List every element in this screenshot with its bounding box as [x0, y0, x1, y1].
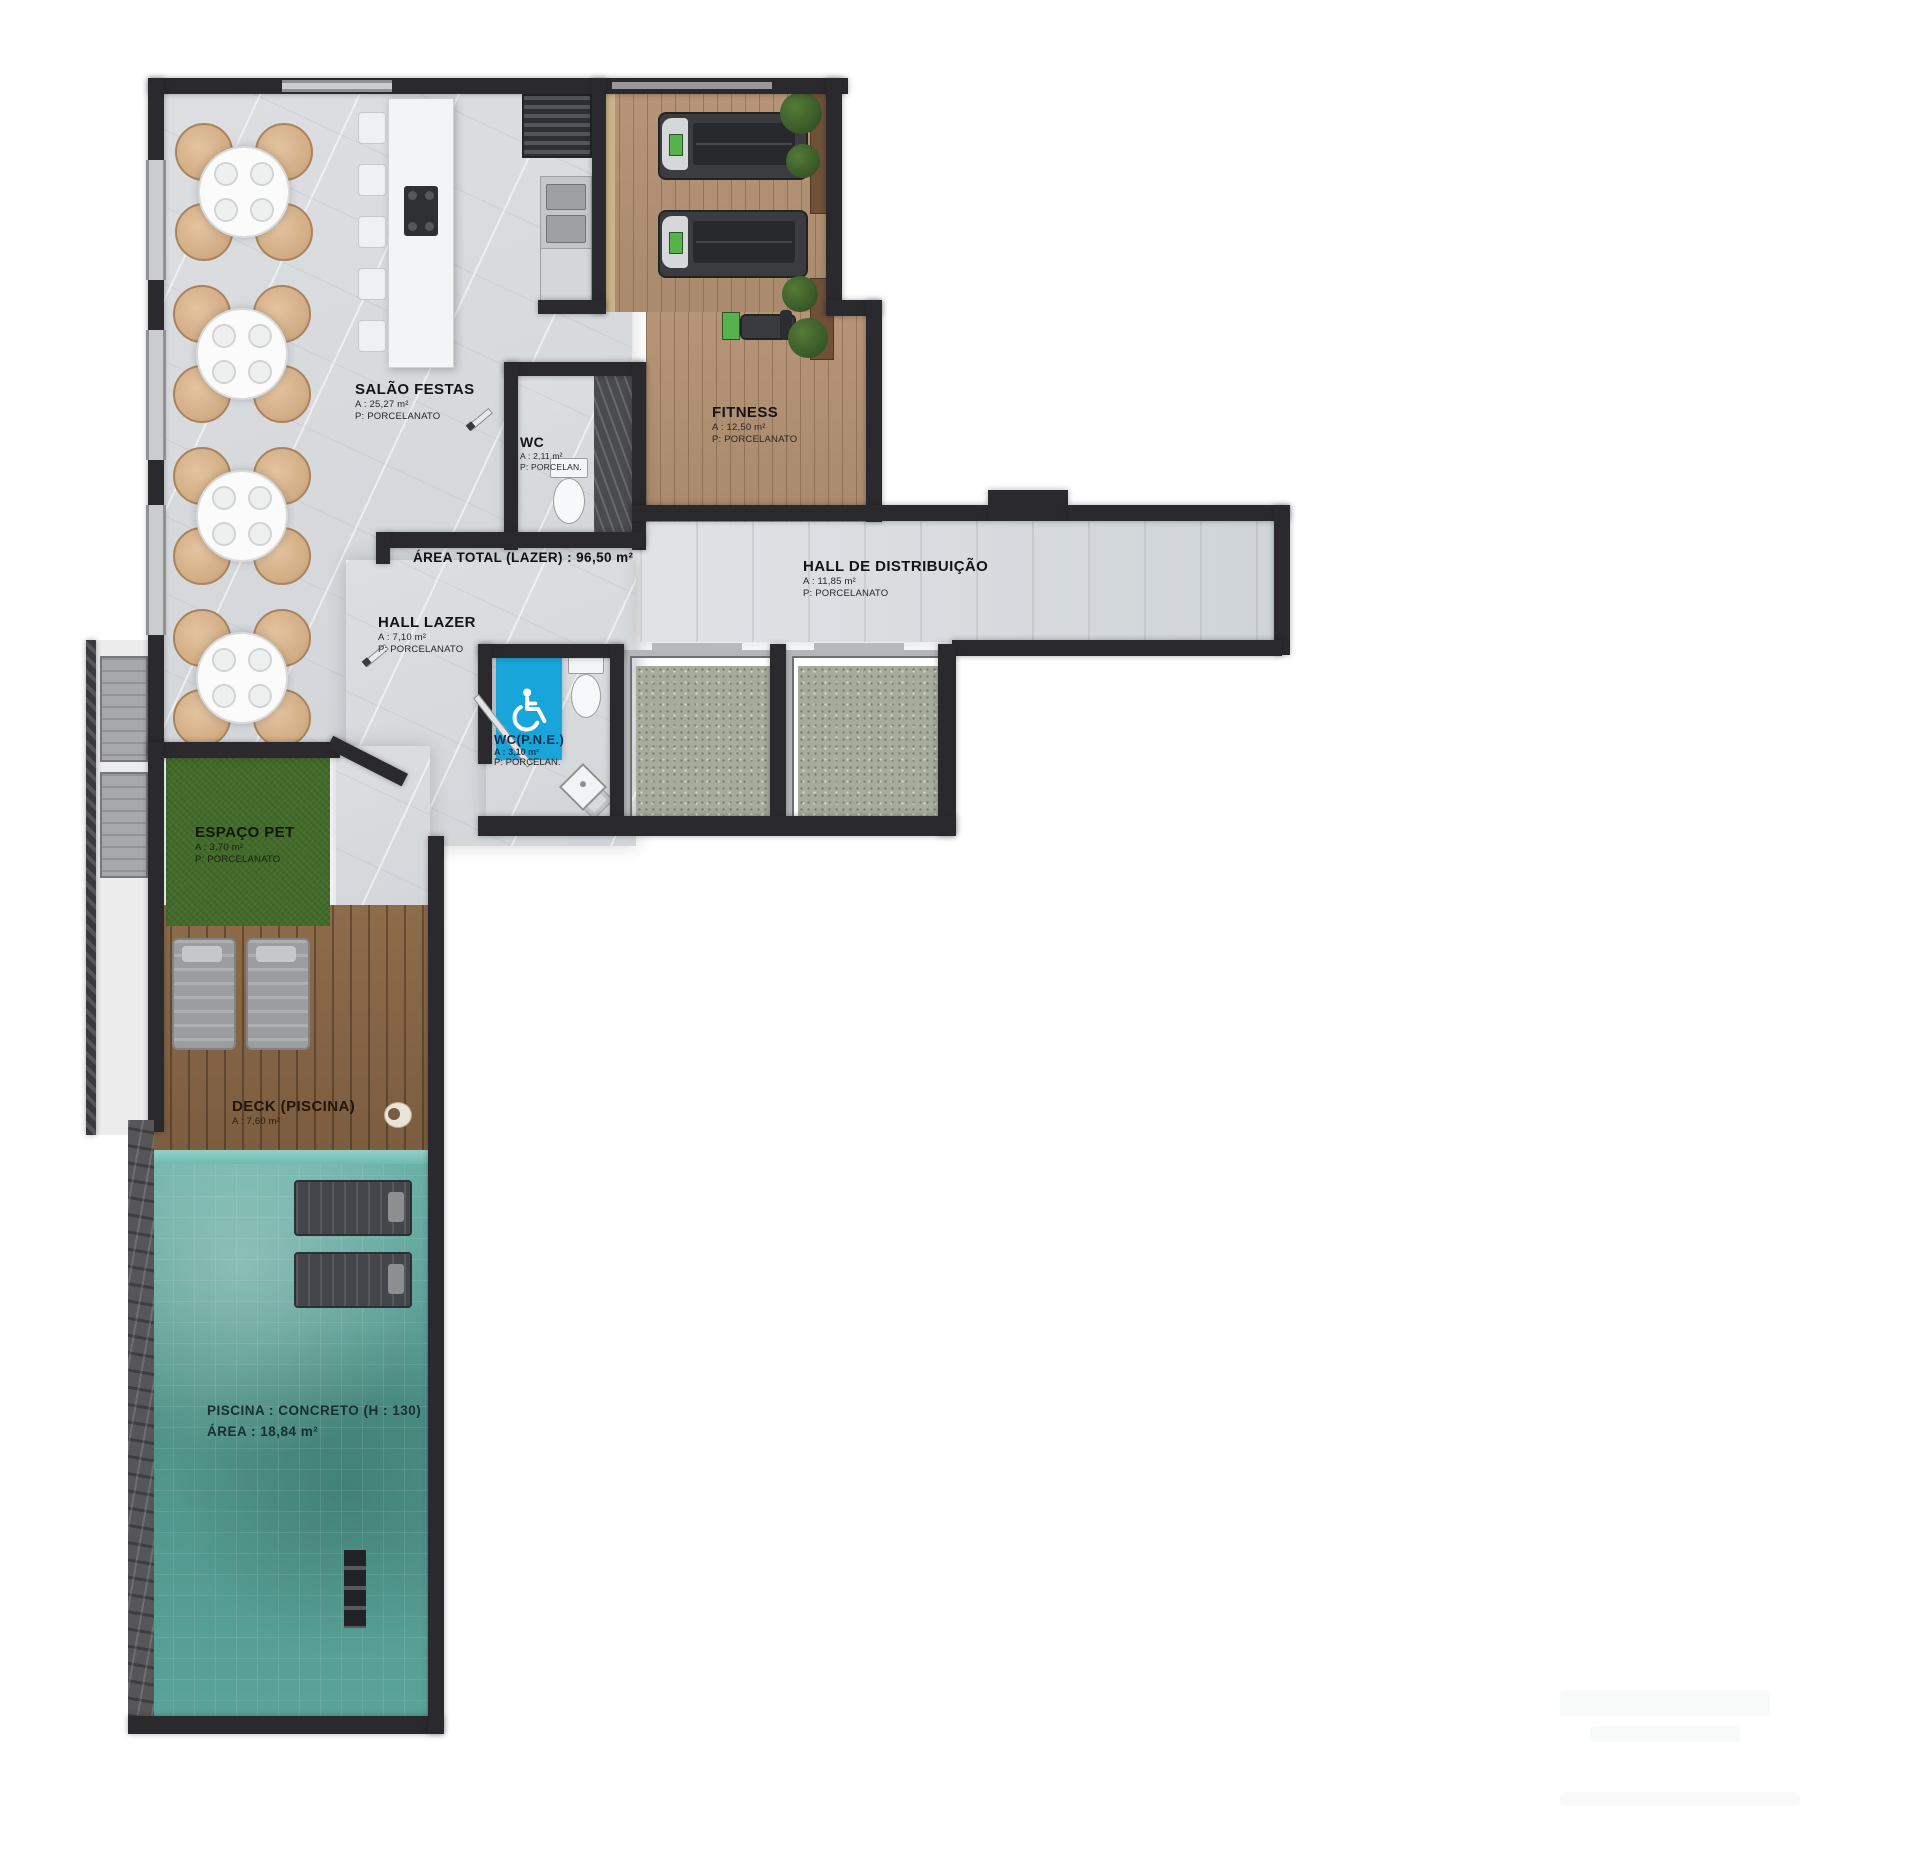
exercise-bike: [722, 306, 798, 348]
fitness-edge-strip: [605, 94, 615, 312]
wall-corridor-top-a: [632, 505, 988, 521]
wall-wcpne-top: [478, 644, 624, 658]
label-wc: WC A : 2,11 m² P: PORCELAN.: [520, 434, 582, 472]
watermark: [1560, 1690, 1840, 1816]
window-left-2: [146, 330, 166, 460]
plant: [788, 318, 828, 358]
label-hall-distribuicao: HALL DE DISTRIBUIÇÃO A : 11,85 m² P: POR…: [803, 558, 988, 599]
room-floor: P: PORCELANATO: [355, 411, 475, 422]
treadmill: [658, 210, 808, 278]
room-floor: P: PORCELANATO: [803, 588, 988, 599]
pool-water: [152, 1162, 428, 1722]
floor-plan: SALÃO FESTAS A : 25,27 m² P: PORCELANATO…: [0, 0, 1920, 1853]
label-area-total: ÁREA TOTAL (LAZER) : 96,50 m²: [413, 550, 633, 565]
cooktop: [404, 186, 438, 236]
wall-left-pet-deck: [148, 742, 164, 1132]
room-title: FITNESS: [712, 404, 797, 421]
pool-ladder: [344, 1550, 366, 1628]
wall-bottom-services: [478, 816, 956, 836]
wall-corridor-top-b: [1068, 505, 1290, 521]
elevator-2-floor: [798, 666, 938, 816]
room-area: A : 3,10 m²: [494, 747, 564, 757]
room-title: SALÃO FESTAS: [355, 381, 475, 398]
deck-lounger: [172, 938, 236, 1050]
pool-lounger: [294, 1252, 412, 1308]
wall-elevator-right: [938, 644, 956, 836]
pool-area-line: ÁREA : 18,84 m²: [207, 1424, 421, 1439]
wall-hall-stub: [376, 532, 390, 564]
elevator-2-door-sill: [814, 643, 904, 651]
wall-counter-end: [538, 300, 606, 314]
room-title: WC(P.N.E.): [494, 732, 564, 747]
label-piscina: PISCINA : CONCRETO (H : 130) ÁREA : 18,8…: [207, 1403, 421, 1439]
label-deck-piscina: DECK (PISCINA) A : 7,60 m²: [232, 1098, 355, 1127]
deck-lounger: [246, 938, 310, 1050]
outdoor-unit: [100, 772, 148, 878]
room-floor: P: PORCELANATO: [195, 854, 295, 865]
wall-bottom-pool: [128, 1716, 444, 1734]
wall-wc-bottom: [388, 532, 644, 548]
round-table: [196, 308, 288, 400]
dining-table-set: [165, 601, 315, 751]
wall-outside-hatch: [86, 640, 96, 1135]
label-wc-pne: WC(P.N.E.) A : 3,10 m² P: PORCELAN.: [494, 732, 564, 768]
wall-party-bottom: [148, 742, 340, 758]
room-area: A : 3,70 m²: [195, 842, 295, 853]
room-title: HALL DE DISTRIBUIÇÃO: [803, 558, 988, 575]
dog: [384, 1102, 412, 1128]
room-floor: P: PORCELAN.: [520, 462, 582, 472]
wall-wc-left: [504, 362, 518, 550]
plant: [786, 144, 820, 178]
room-title: WC: [520, 434, 582, 450]
label-hall-lazer: HALL LAZER A : 7,10 m² P: PORCELANATO: [378, 614, 476, 655]
wc-granite-strip: [594, 376, 634, 532]
pool-lounger: [294, 1180, 412, 1236]
round-table: [198, 146, 290, 238]
pool-edge-coping: [152, 1150, 428, 1164]
room-area: A : 7,60 m²: [232, 1116, 355, 1127]
room-title: HALL LAZER: [378, 614, 476, 631]
room-area: A : 12,50 m²: [712, 422, 797, 433]
wall-wc-top: [504, 362, 644, 376]
bar-stool: [358, 216, 386, 248]
bar-stool: [358, 268, 386, 300]
wall-fitness-right-upper: [826, 78, 842, 314]
round-table: [196, 632, 288, 724]
window-left-1: [146, 160, 166, 280]
dining-table-set: [165, 439, 315, 589]
room-area: A : 2,11 m²: [520, 451, 582, 461]
wall-right-deck-pool: [428, 836, 444, 1734]
wc-toilet-bowl: [553, 478, 585, 524]
window-left-3: [146, 505, 166, 635]
elevator-1-frame: [624, 650, 782, 828]
elevator-2-frame: [786, 650, 950, 828]
plant: [780, 92, 822, 134]
label-salao-festas: SALÃO FESTAS A : 25,27 m² P: PORCELANATO: [355, 381, 475, 422]
wall-kitchen-divider: [592, 78, 606, 314]
wall-stone-pool: [128, 1120, 154, 1734]
bar-stool: [358, 164, 386, 196]
wall-wc-right: [632, 362, 646, 550]
room-area: A : 25,27 m²: [355, 399, 475, 410]
wall-wcpne-right: [610, 644, 624, 820]
wc-pne-toilet-bowl: [571, 674, 601, 718]
wall-corridor-bottom: [952, 640, 1282, 656]
wall-elevator-divider: [770, 644, 786, 816]
window-top-1: [282, 80, 392, 92]
wheelchair-icon: [507, 685, 551, 733]
room-area: A : 7,10 m²: [378, 632, 476, 643]
bar-stool: [358, 112, 386, 144]
bar-stool: [358, 320, 386, 352]
label-espaco-pet: ESPAÇO PET A : 3,70 m² P: PORCELANATO: [195, 824, 295, 865]
barbecue-grill: [522, 94, 592, 158]
wall-corridor-bump: [988, 490, 1068, 521]
plant: [782, 276, 818, 312]
wc-pne-toilet-tank: [568, 656, 604, 674]
label-fitness: FITNESS A : 12,50 m² P: PORCELANATO: [712, 404, 797, 445]
room-floor: P: PORCELAN.: [494, 757, 564, 768]
entry-slider-track: [612, 82, 772, 89]
wall-corridor-right: [1274, 505, 1290, 655]
kitchen-counter: [540, 248, 592, 304]
room-title: DECK (PISCINA): [232, 1098, 355, 1115]
room-title: ESPAÇO PET: [195, 824, 295, 841]
room-floor: P: PORCELANATO: [712, 434, 797, 445]
kitchen-counter-sink: [540, 176, 592, 250]
dining-table-set: [167, 115, 317, 265]
dining-table-set: [165, 277, 315, 427]
room-floor: P: PORCELANATO: [378, 644, 476, 655]
wall-fitness-right-lower: [866, 300, 882, 522]
pool-spec-line: PISCINA : CONCRETO (H : 130): [207, 1403, 421, 1418]
elevator-1-floor: [636, 666, 770, 816]
elevator-1-door-sill: [652, 643, 742, 651]
room-area: A : 11,85 m²: [803, 576, 988, 587]
round-table: [196, 470, 288, 562]
outdoor-unit: [100, 656, 148, 762]
